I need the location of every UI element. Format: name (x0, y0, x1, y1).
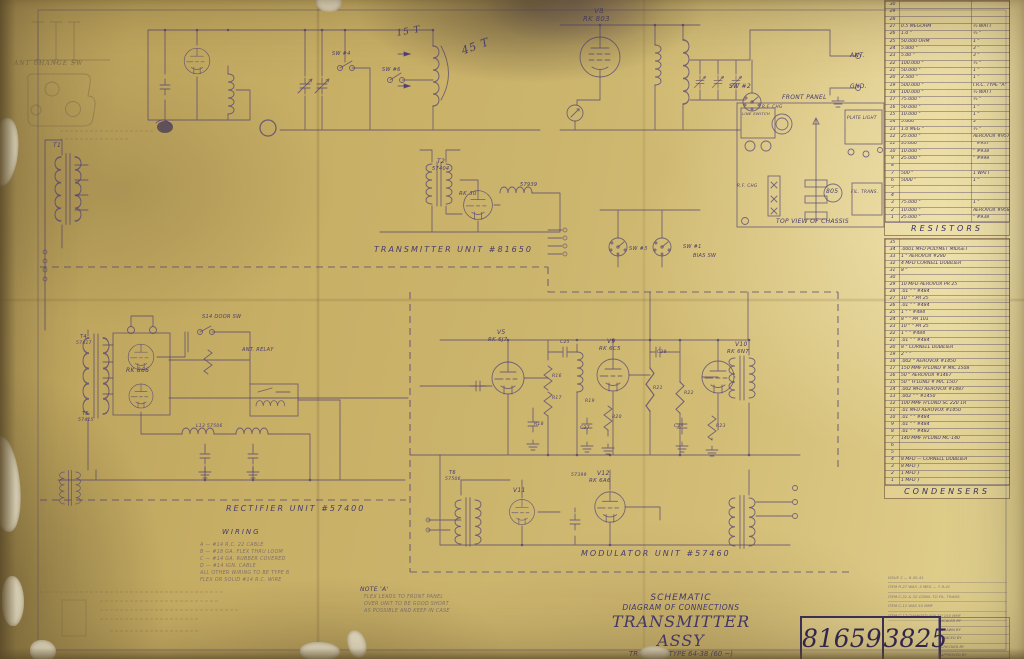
unit-boundary-dashes (40, 267, 850, 572)
table-row: 28.01 " " #484 (886, 289, 1010, 296)
schematic-label: 57399 (571, 474, 587, 479)
resistor-value: 5.000 " (900, 46, 972, 53)
condenser-number: 33 (886, 254, 900, 261)
resistor-rating (972, 9, 1010, 16)
resistor-rating: " #998 (972, 156, 1010, 163)
revision-notes-block: ISSUE 2 — 6-30-41ITEM R-27 WAS .5 MEG — … (888, 574, 1007, 616)
schematic-label: C27 (580, 427, 590, 432)
schematic-label: WIRING (222, 529, 261, 536)
condenser-number: 35 (886, 240, 900, 247)
condenser-number: 27 (886, 296, 900, 303)
resistor-value (900, 185, 972, 192)
table-row: 35 (886, 240, 1010, 247)
resistor-rating: 1 " (972, 112, 1010, 119)
resistor-value: 500.000 " (900, 82, 972, 89)
schematic-label: C28 (657, 351, 667, 356)
table-row: 1510.000 "1 " (886, 112, 1010, 119)
resistor-rating: " #937 (972, 141, 1010, 148)
schematic-line-art (0, 0, 1024, 659)
resistor-number: 4 (886, 192, 900, 199)
schematic-label: TOP VIEW OF CHASSIS (776, 219, 849, 225)
condenser-value: 10 MFD AEROVOX PR 25 (900, 282, 1010, 289)
table-row: 11 MFD } (886, 478, 1010, 485)
schematic-label: T4 (80, 335, 87, 340)
resistor-number: 19 (886, 82, 900, 89)
condenser-number: 9 (886, 422, 900, 429)
condenser-value: .01 MFD AEROVOX #1450 (900, 408, 1010, 415)
table-row: 1135.000 "" #937 (886, 141, 1010, 148)
condenser-value: 8 MFD } (900, 464, 1010, 471)
condenser-value: 2 " " (900, 352, 1010, 359)
resistor-value: 0.5 MEGOHM (900, 24, 972, 31)
resistor-rating: 1 " (972, 38, 1010, 45)
schematic-label: SW #6 (382, 68, 401, 73)
schematic-label: GND. (850, 84, 867, 90)
resistor-number: 17 (886, 97, 900, 104)
condenser-table: 3534.0001 MFD POLYMET MIDGET331 " AEROVO… (884, 238, 1010, 499)
table-row: 18.002 " AEROVOX #1450 (886, 359, 1010, 366)
schematic-label: R.F. CHG (737, 184, 758, 188)
resistor-value: 50.000 OHM (900, 38, 972, 45)
table-row: 125.000 "" #938 (886, 214, 1010, 221)
table-row: 6 (886, 443, 1010, 450)
condenser-value: 150 MMF H'LUND # MIC 1508 (900, 366, 1010, 373)
condenser-number: 12 (886, 401, 900, 408)
signature-row: DRAWN BY (939, 627, 1009, 636)
resistor-table-title: RESISTORS (885, 222, 1009, 235)
schematic-label: T1 (53, 143, 61, 149)
resistor-value: 2.500 " (900, 75, 972, 82)
table-row: 202.500 "1 " (886, 75, 1010, 82)
condenser-number: 22 (886, 331, 900, 338)
resistor-value: 50.000 " (900, 68, 972, 75)
table-row: 1010.000 "" #938 (886, 148, 1010, 155)
condenser-value: 50 " AEROVOX #1467 (900, 373, 1010, 380)
resistor-value: 35.000 " (900, 141, 972, 148)
resistor-rating: 1 " (972, 178, 1010, 185)
table-row: 192 " " (886, 352, 1010, 359)
resistor-value: 25.000 " (900, 134, 972, 141)
table-row: 7500 "1 WATT (886, 170, 1010, 177)
table-row: 318 " (886, 268, 1010, 275)
resistor-number: 6 (886, 178, 900, 185)
table-row: 17150 MMF H'LUND # MIC 1508 (886, 366, 1010, 373)
schematic-label: V11 (513, 488, 526, 494)
table-row: 245.000 "3 " (886, 46, 1010, 53)
condenser-value: .01 " " #484 (900, 415, 1010, 422)
condenser-value: 10 " " PR 25 (900, 296, 1010, 303)
condenser-number: 3 (886, 464, 900, 471)
resistor-rating: ½ " (972, 60, 1010, 67)
condenser-value: 8 " (900, 268, 1010, 275)
schematic-label: RECTIFIER UNIT #57400 (226, 505, 365, 513)
schematic-label: R19 (585, 400, 595, 405)
condenser-number: 17 (886, 366, 900, 373)
schematic-label: R22 (684, 392, 694, 397)
condenser-value: .01 " " #484 (900, 303, 1010, 310)
resistor-value: 10.000 " (900, 148, 972, 155)
schematic-label: V10 (735, 342, 748, 348)
schematic-label: LINE SWITCH (742, 112, 770, 116)
schematic-label: R20 (612, 416, 622, 421)
table-row: 13.002 " " #1450 (886, 394, 1010, 401)
condenser-number: 21 (886, 338, 900, 345)
resistor-value (900, 9, 972, 16)
resistor-rating: 1 " (972, 104, 1010, 111)
schematic-label: FIL. TRANS. (851, 190, 878, 194)
blueprint-sheet: V8RK 80315 T45 TSW #4SW #6ANT.GND.SW #2T… (0, 0, 1024, 659)
resistor-value: 10.000 " (900, 112, 972, 119)
table-row: 1775.000 "½ " (886, 97, 1010, 104)
table-row: 2710 " " PR 25 (886, 296, 1010, 303)
schematic-label: FLEX OR SOLID #14 R.C. WIRE (200, 578, 282, 583)
condenser-number: 16 (886, 373, 900, 380)
revision-note: ITEM C-12 WAS 50 MMF (888, 602, 1007, 611)
resistor-value (900, 2, 972, 9)
revision-note: ITEM C-31 & 32 CONN. TO FIL. TRANS. (888, 593, 1007, 602)
resistor-value: 75.000 " (900, 200, 972, 207)
resistor-value: 75.000 " (900, 97, 972, 104)
condenser-value (900, 240, 1010, 247)
schematic-label: 57404 (432, 167, 449, 172)
resistor-value: 5.000 " (900, 119, 972, 126)
resistor-number: 30 (886, 2, 900, 9)
resistor-number: 29 (886, 9, 900, 16)
junction-dots (164, 24, 751, 547)
resistor-value: 5.00 " (900, 53, 972, 60)
table-row: 251 " " #484 (886, 310, 1010, 317)
condenser-number: 4 (886, 457, 900, 464)
condenser-number: 1 (886, 478, 900, 485)
condenser-number: 5 (886, 450, 900, 457)
condenser-value: 100 MMF H'LUND SC 220 1R (900, 401, 1010, 408)
table-row: 38 MFD } (886, 464, 1010, 471)
table-row: 8.01 " " #482 (886, 429, 1010, 436)
resistor-value: 25.000 " (900, 156, 972, 163)
resistor-number: 7 (886, 170, 900, 177)
table-row: 261.0 "½ " (886, 31, 1010, 38)
table-row: 270.5 MEGOHM½ WATT (886, 24, 1010, 31)
table-row: 131.0 MEG "½ " (886, 126, 1010, 133)
resistor-number: 3 (886, 200, 900, 207)
table-row: 375.000 "1 " (886, 200, 1010, 207)
condenser-value: .0001 MFD POLYMET MIDGET (900, 247, 1010, 254)
condenser-value: 1 " AEROVOX #280 (900, 254, 1010, 261)
table-row: 2150.000 "1 " (886, 68, 1010, 75)
resistor-rating: ½ " (972, 97, 1010, 104)
condenser-value (900, 450, 1010, 457)
table-row: 2310 " " PR 25 (886, 324, 1010, 331)
schematic-label: RK 30 (459, 192, 477, 198)
condenser-value: 50 " H'LUND # MIC 1507 (900, 380, 1010, 387)
schematic-label: V9 (607, 339, 616, 345)
schematic-label: ANT CHANGE SW (14, 61, 83, 67)
schematic-label: BIAS SW (693, 254, 716, 259)
condenser-number: 7 (886, 436, 900, 443)
schematic-label: MODULATOR UNIT #57460 (581, 550, 731, 558)
condenser-number: 32 (886, 261, 900, 268)
table-row: 145.000 "3 " (886, 119, 1010, 126)
resistor-number: 5 (886, 185, 900, 192)
condenser-value: 1 " " #484 (900, 310, 1010, 317)
resistor-number: 9 (886, 156, 900, 163)
schematic-label: V12 (597, 471, 610, 477)
condenser-table-title: CONDENSERS (885, 485, 1009, 498)
condenser-value: .002 MFD AEROVOX #1487 (900, 387, 1010, 394)
bottom-edge-shadow (0, 648, 1024, 659)
title-line-schematic: SCHEMATIC (586, 593, 776, 603)
signature-row: SCALED BY (939, 618, 1009, 627)
condenser-value: 1 MFD } (900, 478, 1010, 485)
table-row: 29 (886, 9, 1010, 16)
resistor-rating: ½ WATT (972, 24, 1010, 31)
resistor-number: 15 (886, 112, 900, 119)
condenser-number: 25 (886, 310, 900, 317)
table-row: 28 (886, 16, 1010, 23)
condenser-value: .01 " " #484 (900, 422, 1010, 429)
schematic-label: L13 57506 (196, 425, 223, 430)
resistor-rating: ½ " (972, 31, 1010, 38)
condenser-value: .002 " " #1450 (900, 394, 1010, 401)
resistor-rating: 1 " (972, 68, 1010, 75)
table-row: 19500.000 "I.R.C. TYPE "A" (886, 82, 1010, 89)
revision-note: ISSUE 2 — 6-30-41 (888, 574, 1007, 583)
condenser-value (900, 443, 1010, 450)
table-row: 30 (886, 275, 1010, 282)
resistor-number: 2 (886, 207, 900, 214)
schematic-label: B — #18 GA. FLEX THRU LOOM (200, 550, 283, 555)
table-row: 30 (886, 2, 1010, 9)
resistor-number: 1 (886, 214, 900, 221)
resistor-number: 14 (886, 119, 900, 126)
schematic-label: SW #4 (332, 52, 351, 57)
resistor-table-grid: 302928270.5 MEGOHM½ WATT261.0 "½ "2550.0… (885, 1, 1010, 222)
schematic-label: D — #14 IGN. CABLE (200, 564, 256, 569)
schematic-label: FRONT PANEL (782, 95, 827, 101)
condenser-number: 18 (886, 359, 900, 366)
table-row: 12100 MMF H'LUND SC 220 1R (886, 401, 1010, 408)
schematic-label: 57415 (78, 419, 94, 424)
table-row: 324 MFD CORNELL DUBILIER (886, 261, 1010, 268)
resistor-rating (972, 16, 1010, 23)
resistor-number: 26 (886, 31, 900, 38)
schematic-label: AS POSSIBLE AND KEEP IN CASE (364, 609, 450, 614)
table-row: 21.01 " " #484 (886, 338, 1010, 345)
resistor-number: 22 (886, 60, 900, 67)
table-row: 34.0001 MFD POLYMET MIDGET (886, 247, 1010, 254)
condenser-number: 8 (886, 429, 900, 436)
table-row: 925.000 "" #998 (886, 156, 1010, 163)
condenser-value: 10 " " PR 25 (900, 324, 1010, 331)
resistor-number: 10 (886, 148, 900, 155)
resistor-number: 25 (886, 38, 900, 45)
resistor-rating: 1 " (972, 200, 1010, 207)
resistor-value: 500 " (900, 170, 972, 177)
resistor-rating: AEROVOX #957 (972, 134, 1010, 141)
revision-note: ITEM R-27 WAS .5 MEG — 7-9-41 (888, 583, 1007, 592)
resistor-rating: AEROVOX #958 (972, 207, 1010, 214)
resistor-value: 100.000 " (900, 60, 972, 67)
table-row: 26.01 " " #484 (886, 303, 1010, 310)
resistor-value: 25.000 " (900, 214, 972, 221)
condenser-number: 10 (886, 415, 900, 422)
resistor-table: 302928270.5 MEGOHM½ WATT261.0 "½ "2550.0… (884, 0, 1010, 236)
resistor-rating: " #938 (972, 148, 1010, 155)
schematic-label: R23 (716, 425, 726, 430)
resistor-rating: 3 " (972, 46, 1010, 53)
table-row: 208 " CORNELL DUBILIER (886, 345, 1010, 352)
schematic-label: ANT. RELAY (242, 348, 274, 353)
table-row: 7140 MMF H'LUND MC-140 (886, 436, 1010, 443)
schematic-label: SW #2 (729, 84, 751, 90)
condenser-number: 14 (886, 387, 900, 394)
condenser-number: 19 (886, 352, 900, 359)
condenser-number: 29 (886, 282, 900, 289)
condenser-number: 6 (886, 443, 900, 450)
resistor-number: 12 (886, 134, 900, 141)
schematic-label: RK 6A6 (589, 479, 611, 485)
resistor-number: 11 (886, 141, 900, 148)
schematic-label: SW #3 (629, 247, 648, 252)
schematic-label: SW #1 (683, 245, 702, 250)
schematic-label: T6 (449, 471, 456, 476)
table-row: 210.000 "AEROVOX #958 (886, 207, 1010, 214)
schematic-label: C — #14 GA. RUBBER COVERED (200, 557, 286, 562)
schematic-label: R21 (653, 387, 663, 392)
condenser-value: .002 " AEROVOX #1450 (900, 359, 1010, 366)
resistor-rating (972, 192, 1010, 199)
table-row: 5 (886, 450, 1010, 457)
resistor-number: 16 (886, 104, 900, 111)
schematic-label: T2 (437, 159, 445, 165)
resistor-rating: ½ WATT (972, 90, 1010, 97)
schematic-label: RK 803 (583, 16, 610, 23)
condenser-value: 8 MFD — CORNELL DUBILIER (900, 457, 1010, 464)
table-row: 1650.000 "1 " (886, 104, 1010, 111)
resistor-value: 1.0 MEG " (900, 126, 972, 133)
chassis-top-view-inset (737, 103, 884, 227)
table-row: 221 " " #484 (886, 331, 1010, 338)
table-row: 235.00 "3 " (886, 53, 1010, 60)
resistor-value (900, 163, 972, 170)
table-row: 10.01 " " #484 (886, 415, 1010, 422)
table-row: 2910 MFD AEROVOX PR 25 (886, 282, 1010, 289)
resistor-value (900, 192, 972, 199)
schematic-label: A — #14 R.C. 22 CABLE (200, 543, 264, 548)
resistor-value (900, 16, 972, 23)
resistor-number: 24 (886, 46, 900, 53)
schematic-label: 57417 (76, 342, 92, 347)
schematic-label: T5 (82, 412, 89, 417)
condenser-number: 26 (886, 303, 900, 310)
table-row: 2550.000 OHM1 " (886, 38, 1010, 45)
schematic-label: NOTE 'A' (360, 587, 388, 593)
schematic-label: RK 6N7 (727, 350, 749, 356)
table-row: 248 " " PR 101 (886, 317, 1010, 324)
condenser-value: 140 MMF H'LUND MC-140 (900, 436, 1010, 443)
resistor-number: 8 (886, 163, 900, 170)
resistor-number: 13 (886, 126, 900, 133)
table-row: 18100.000 "½ WATT (886, 90, 1010, 97)
resistor-rating (972, 163, 1010, 170)
schematic-label: RK 6J7 (488, 338, 508, 344)
condenser-table-grid: 3534.0001 MFD POLYMET MIDGET331 " AEROVO… (885, 239, 1010, 485)
schematic-label: FLEX LEADS TO FRONT PANEL (364, 595, 443, 600)
schematic-label: ANT. (850, 53, 865, 59)
resistor-number: 27 (886, 24, 900, 31)
condenser-value (900, 275, 1010, 282)
table-row: 11.01 MFD AEROVOX #1450 (886, 408, 1010, 415)
ink-circuit-layer (38, 10, 1006, 650)
condenser-number: 28 (886, 289, 900, 296)
schematic-label: R.F. CHG (762, 105, 783, 109)
title-line-diagram: DIAGRAM OF CONNECTIONS (586, 603, 776, 612)
schematic-label: TRANSMITTER UNIT #81650 (374, 246, 533, 254)
condenser-number: 13 (886, 394, 900, 401)
table-row: 65000 "1 " (886, 178, 1010, 185)
resistor-number: 20 (886, 75, 900, 82)
schematic-label: R18 (534, 423, 544, 428)
condenser-value: 1 MFD } (900, 471, 1010, 478)
condenser-value: 1 " " #484 (900, 331, 1010, 338)
schematic-label: RK 6C5 (599, 347, 621, 353)
table-row: 331 " AEROVOX #280 (886, 254, 1010, 261)
resistor-rating (972, 185, 1010, 192)
schematic-label: C29 (674, 425, 684, 430)
table-row: 9.01 " " #484 (886, 422, 1010, 429)
schematic-label: OVER UNIT TO BE GOOD SHORT (364, 602, 449, 607)
resistor-value: 10.000 " (900, 207, 972, 214)
resistor-number: 18 (886, 90, 900, 97)
condenser-number: 2 (886, 471, 900, 478)
schematic-label: 805 (826, 189, 838, 195)
condenser-number: 24 (886, 317, 900, 324)
condenser-number: 20 (886, 345, 900, 352)
schematic-label: PLATE LIGHT (847, 116, 877, 120)
condenser-value: 8 " " PR 101 (900, 317, 1010, 324)
resistor-value: 50.000 " (900, 104, 972, 111)
table-row: 48 MFD — CORNELL DUBILIER (886, 457, 1010, 464)
table-row: 1225.000 "AEROVOX #957 (886, 134, 1010, 141)
schematic-label: 57506 (445, 478, 461, 483)
table-row: 14.002 MFD AEROVOX #1487 (886, 387, 1010, 394)
schematic-label: RK 866 (126, 368, 149, 374)
table-row: 22100.000 "½ " (886, 60, 1010, 67)
resistor-rating: 3 " (972, 53, 1010, 60)
condenser-number: 30 (886, 275, 900, 282)
table-row: 4 (886, 192, 1010, 199)
table-row: 8 (886, 163, 1010, 170)
condenser-number: 11 (886, 408, 900, 415)
condenser-number: 23 (886, 324, 900, 331)
condenser-value: .01 " " #482 (900, 429, 1010, 436)
signature-row: TRACED BY (939, 635, 1009, 644)
condenser-number: 15 (886, 380, 900, 387)
schematic-label: C25 (560, 341, 570, 346)
left-edge-shadow (0, 0, 16, 659)
resistor-rating: I.R.C. TYPE "A" (972, 82, 1010, 89)
resistor-value: 1.0 " (900, 31, 972, 38)
resistor-rating: " #938 (972, 214, 1010, 221)
resistor-rating (972, 2, 1010, 9)
table-row: 21 MFD } (886, 471, 1010, 478)
condenser-value: .01 " " #484 (900, 289, 1010, 296)
resistor-number: 28 (886, 16, 900, 23)
condenser-value: 8 " CORNELL DUBILIER (900, 345, 1010, 352)
resistor-rating: ½ " (972, 126, 1010, 133)
schematic-label: R17 (552, 397, 562, 402)
condenser-value: 4 MFD CORNELL DUBILIER (900, 261, 1010, 268)
